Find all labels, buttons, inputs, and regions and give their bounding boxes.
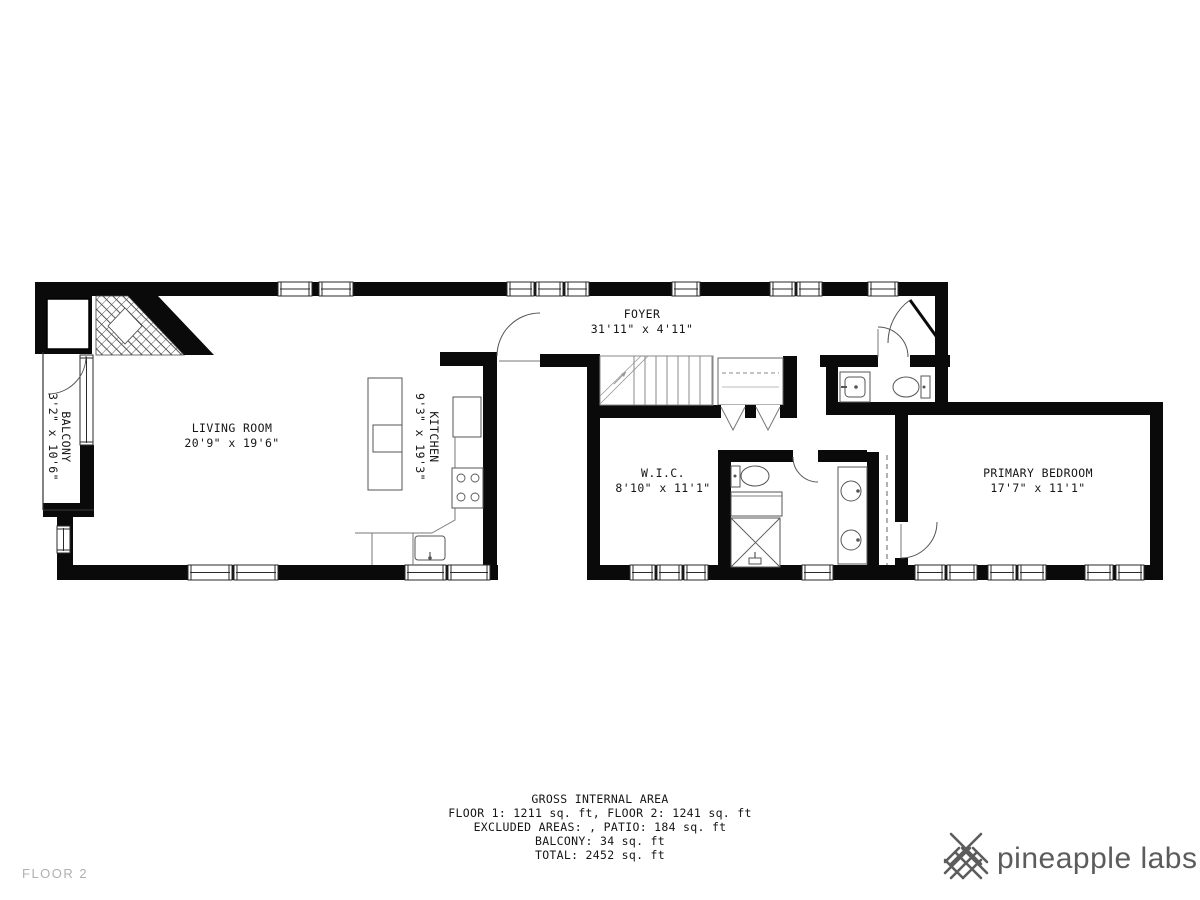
vanity-counter xyxy=(731,492,782,516)
bedroom-door-arc xyxy=(901,522,937,558)
room-label-foyer: FOYER xyxy=(624,307,661,321)
area-summary-balcony: BALCONY: 34 sq. ft xyxy=(535,834,665,848)
staircase xyxy=(600,356,713,405)
floorplan-page: FOYER 31'11" x 4'11" LIVING ROOM 20'9" x… xyxy=(0,0,1200,900)
range-icon xyxy=(452,468,483,508)
kitchen-sink-icon xyxy=(415,536,445,560)
room-label-kitchen: KITCHEN xyxy=(427,411,441,462)
room-dims-living-room: 20'9" x 19'6" xyxy=(184,436,279,450)
brand-name: pineapple labs xyxy=(997,842,1198,875)
area-summary: GROSS INTERNAL AREA FLOOR 1: 1211 sq. ft… xyxy=(448,792,751,862)
utility-door-arc xyxy=(497,313,540,356)
area-summary-excluded: EXCLUDED AREAS: , PATIO: 184 sq. ft xyxy=(474,820,727,834)
brand-logo: pineapple labs xyxy=(945,834,1198,878)
room-label-wic: W.I.C. xyxy=(641,466,685,480)
room-dims-kitchen: 9'3" x 19'3" xyxy=(413,393,427,481)
room-dims-foyer: 31'11" x 4'11" xyxy=(591,322,694,336)
bathroom-door-arc xyxy=(793,457,818,482)
powder-room xyxy=(840,372,930,402)
hall-closet xyxy=(718,358,783,430)
room-label-living-room: LIVING ROOM xyxy=(192,421,273,435)
primary-bathroom xyxy=(731,455,887,567)
pineapple-hatch-icon xyxy=(945,834,987,878)
powder-door-arc xyxy=(878,327,908,357)
area-summary-total: TOTAL: 2452 sq. ft xyxy=(535,848,665,862)
toilet-icon xyxy=(731,466,769,487)
room-label-balcony: BALCONY xyxy=(59,411,73,462)
shower-icon xyxy=(731,518,780,567)
room-dims-wic: 8'10" x 11'1" xyxy=(615,481,710,495)
toilet-icon xyxy=(893,376,930,398)
room-label-primary-bedroom: PRIMARY BEDROOM xyxy=(983,466,1093,480)
room-dims-balcony: 3'2" x 10'6" xyxy=(46,393,60,481)
fridge-icon xyxy=(453,397,481,437)
floor-label: FLOOR 2 xyxy=(22,866,88,881)
double-vanity xyxy=(838,467,867,564)
floorplan-svg: FOYER 31'11" x 4'11" LIVING ROOM 20'9" x… xyxy=(0,0,1200,900)
area-summary-floors: FLOOR 1: 1211 sq. ft, FLOOR 2: 1241 sq. … xyxy=(448,806,751,820)
sink-icon xyxy=(840,372,870,402)
area-summary-title: GROSS INTERNAL AREA xyxy=(531,792,668,806)
room-dims-primary-bedroom: 17'7" x 11'1" xyxy=(990,481,1085,495)
